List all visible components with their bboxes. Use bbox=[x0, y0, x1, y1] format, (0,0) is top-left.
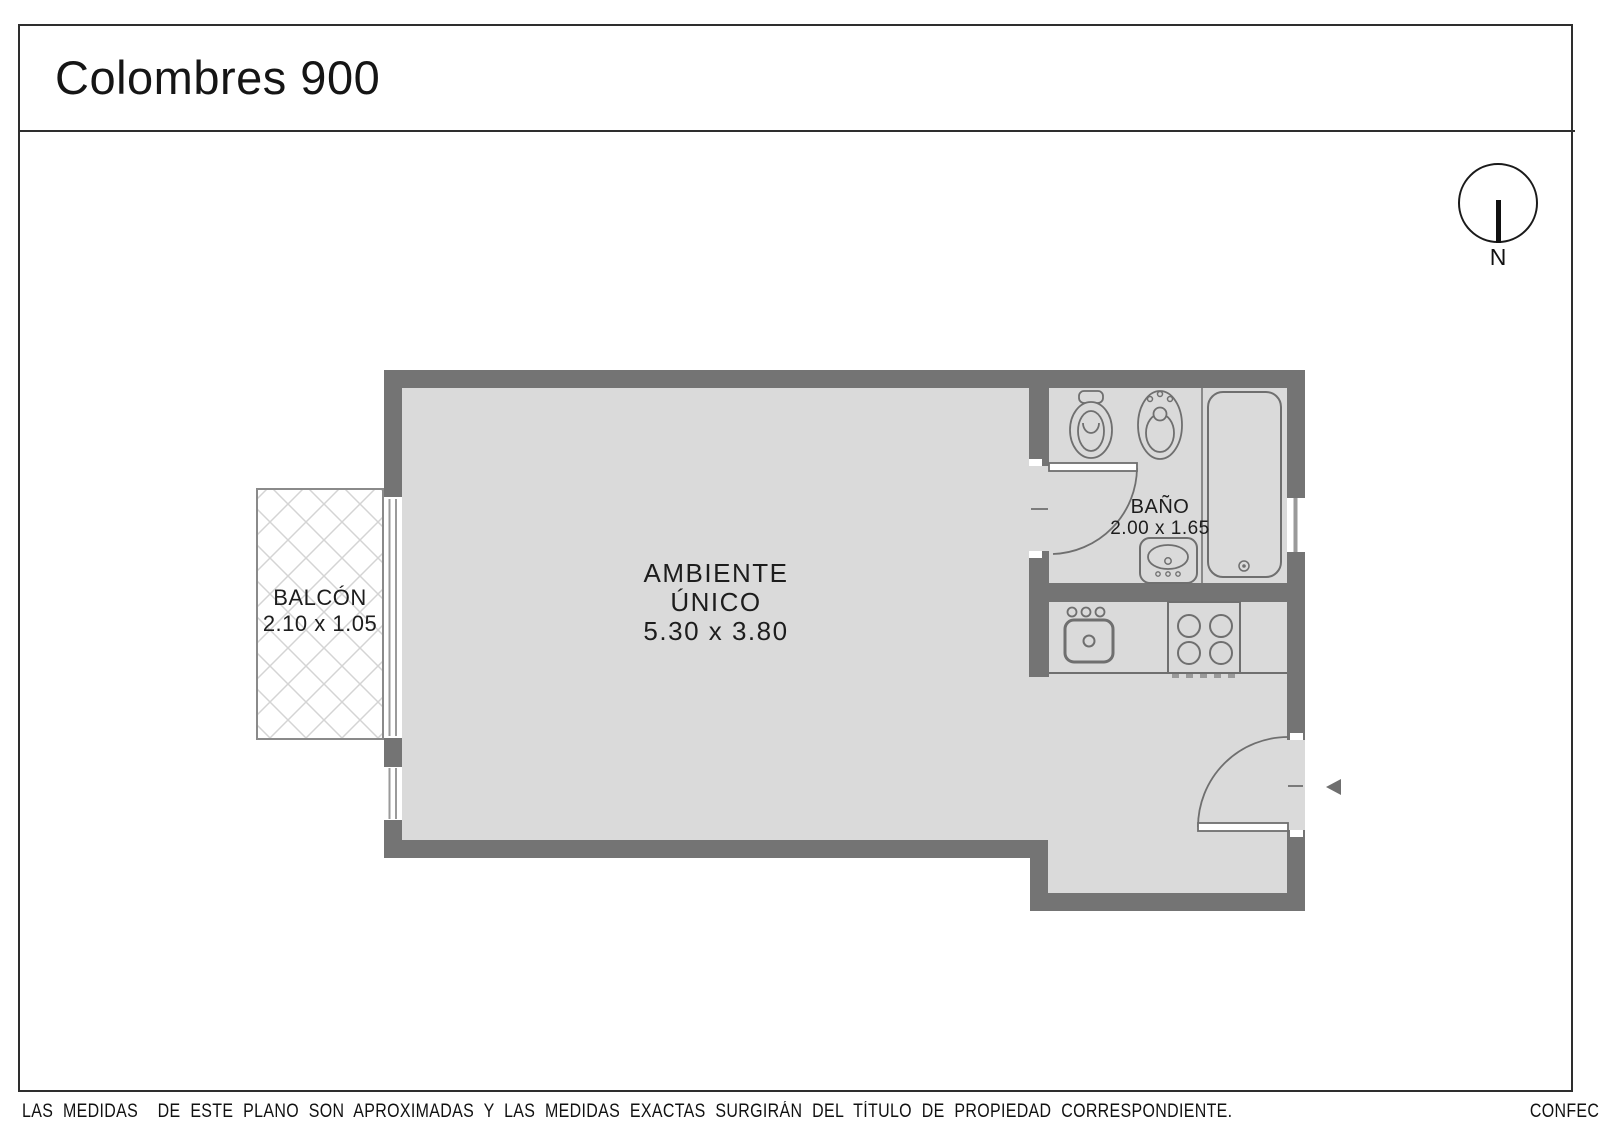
bathroom-window bbox=[1287, 498, 1305, 552]
left-window bbox=[384, 767, 402, 820]
balcony-label: BALCÓN 2.10 x 1.05 bbox=[250, 585, 390, 637]
footer-credit: CONFECCIONADO POR ESTUDIO NARTEX bbox=[1530, 1101, 1600, 1123]
bathroom-label: BAÑO 2.00 x 1.65 bbox=[1085, 497, 1235, 539]
entry-arrow-icon bbox=[1326, 779, 1341, 795]
bathroom-dimensions: 2.00 x 1.65 bbox=[1085, 518, 1235, 539]
balcony-name: BALCÓN bbox=[250, 585, 390, 611]
bidet-icon bbox=[1138, 391, 1182, 459]
bathtub-icon bbox=[1208, 392, 1281, 577]
bathroom-name: BAÑO bbox=[1085, 497, 1235, 518]
bathroom-sink-icon bbox=[1140, 538, 1197, 583]
main-room-dimensions: 5.30 x 3.80 bbox=[566, 617, 866, 646]
balcony-dimensions: 2.10 x 1.05 bbox=[250, 611, 390, 637]
floor-plan-page: { "title": "Colombres 900", "compass": {… bbox=[0, 0, 1600, 1131]
main-room-label: AMBIENTE ÚNICO 5.30 x 3.80 bbox=[566, 559, 866, 646]
main-room-name-line2: ÚNICO bbox=[566, 588, 866, 617]
footer: LAS MEDIDAS DE ESTE PLANO SON APROXIMADA… bbox=[22, 1099, 1582, 1125]
footer-disclaimer: LAS MEDIDAS DE ESTE PLANO SON APROXIMADA… bbox=[22, 1101, 1232, 1123]
main-room-name-line1: AMBIENTE bbox=[566, 559, 866, 588]
